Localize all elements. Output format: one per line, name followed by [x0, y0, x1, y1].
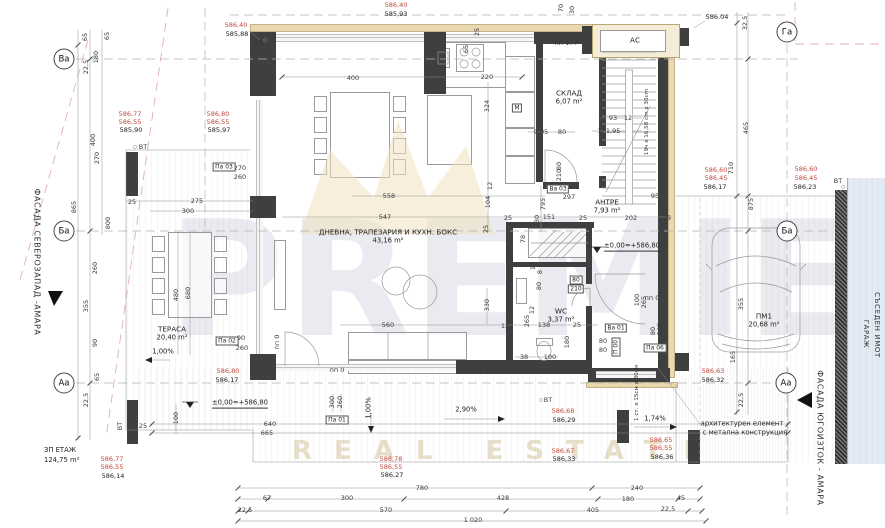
- elevation-design-label: 586,55: [207, 119, 230, 126]
- dimension-label: 570: [380, 507, 392, 514]
- dimension-label: 30: [569, 6, 576, 14]
- dimension-label: 104: [485, 196, 492, 208]
- neighbor-plot-label: СЪСЕДЕН ИМОТ: [873, 292, 881, 358]
- elevation-design-label: 586,60: [705, 167, 728, 174]
- dimension-label: 9,05: [534, 129, 548, 136]
- dimension-label: 730: [534, 215, 541, 227]
- room-name: АНТРЕ: [594, 197, 621, 206]
- opening-tag: М: [512, 104, 522, 113]
- dimension-label: 865: [71, 201, 78, 213]
- axis-id: Ва: [58, 54, 69, 64]
- elevation-design-label: 586,63: [702, 368, 725, 375]
- dimension-label: 480: [173, 289, 180, 301]
- elevation-design-label: 586,45: [705, 175, 728, 182]
- dimension-label: 180: [622, 496, 634, 503]
- dimension-label: 270: [234, 165, 246, 172]
- elevation-design-label: 586,55: [650, 445, 673, 452]
- room-label: АНТРЕ7,93 m²: [594, 197, 621, 214]
- dimension-label: 265: [524, 315, 531, 327]
- dimension-label: 25: [139, 423, 147, 430]
- dimension-label: 8: [537, 270, 544, 274]
- axis-id: Ба: [58, 226, 69, 236]
- facade-label-southeast: ФАСАДА ЮГОИЗТОК - АМАРА: [816, 370, 825, 505]
- dimension-label: 405: [587, 507, 599, 514]
- floor-summary-area: 124,75 m²: [44, 456, 79, 464]
- elevation-design-label: 586,55: [380, 464, 403, 471]
- dimension-label: 32,5: [742, 16, 749, 30]
- room-label: ПМ120,68 m²: [749, 311, 780, 328]
- dimension-label: 121,95: [598, 128, 621, 135]
- dimension-label: 80: [536, 282, 543, 290]
- dimension-label: пп 177: [555, 40, 578, 47]
- dimension-label: 95: [651, 193, 659, 200]
- room-label: АС: [630, 36, 640, 45]
- dimension-label: 165: [730, 351, 737, 363]
- dimension-label: 180: [564, 336, 571, 348]
- elevation-existing-label: 585,90: [120, 127, 143, 134]
- dimension-label: 800: [105, 217, 112, 229]
- dimension-label: 65: [94, 373, 101, 381]
- dimension-label: 67: [263, 495, 271, 502]
- dimension-label: 65: [82, 33, 89, 41]
- elevation-existing-label: 586,36: [651, 454, 674, 461]
- dimension-label: 400: [347, 75, 359, 82]
- axis-id: Аа: [58, 378, 69, 388]
- neighbor-garage-label: ГАРАЖ: [862, 320, 870, 349]
- dimension-label: пп 0: [645, 295, 660, 302]
- dimension-label: 680: [185, 287, 192, 299]
- dimension-label: 270: [94, 152, 101, 164]
- axis-bubble: Аа: [776, 373, 797, 394]
- dimension-label: 297: [563, 194, 575, 201]
- dimension-label: 875: [748, 198, 755, 210]
- elevation-existing-label: 585,93: [385, 11, 408, 18]
- dimension-label: 22,5: [83, 393, 90, 407]
- dimension-label: 265: [657, 323, 664, 335]
- dimension-label: ВТ: [544, 397, 552, 404]
- annotation: архитектурен елемент: [701, 421, 784, 428]
- dimension-label: 22,5: [83, 60, 90, 74]
- dimension-label: 220: [481, 74, 493, 81]
- room-name: ДНЕВНА, ТРАПЕЗАРИЯ И КУХН. БОКС: [319, 227, 457, 236]
- room-label: СКЛАД6,07 m²: [556, 88, 583, 105]
- elevation-design-label: 586,78: [380, 456, 403, 463]
- dimension-label: 12: [624, 115, 632, 122]
- dimension-label: 324: [484, 100, 491, 112]
- elevation-design-label: 586,77: [101, 456, 124, 463]
- elevation-existing-label: 585,97: [208, 127, 231, 134]
- dimension-label: 25: [476, 364, 483, 372]
- dimension-label: 38: [520, 354, 528, 361]
- dimension-label: 80: [599, 338, 607, 345]
- axis-bubble: Аа: [54, 373, 75, 394]
- dimension-label: 275: [191, 198, 203, 205]
- floor-plan: PREMIER REAL ESTATE ФАСАДА СЕВЕРОЗАПАД -…: [0, 0, 885, 528]
- elevation-existing-label: 586,33: [553, 456, 576, 463]
- room-area: 7,93 m²: [594, 206, 621, 214]
- dimension-label: 151: [543, 214, 555, 221]
- dimension-label: 80: [599, 347, 607, 354]
- dimension-label: 330: [484, 299, 491, 311]
- dimension-label: 202: [625, 215, 637, 222]
- dimension-label: ВТ: [117, 422, 124, 430]
- dimension-label: 558: [383, 193, 395, 200]
- elevation-existing-label: 586.04: [706, 14, 729, 21]
- room-area: 43,16 m²: [319, 236, 457, 244]
- dimension-label: 70: [558, 4, 565, 12]
- dimension-label: 25: [504, 215, 512, 222]
- elevation-existing-label: 586,23: [794, 184, 817, 191]
- dimension-label: 260: [234, 174, 246, 181]
- elevation-existing-label: 586,27: [381, 472, 404, 479]
- elevation-design-label: 586,40: [385, 2, 408, 9]
- dimension-label: 22,5: [661, 506, 675, 513]
- annotation: 2,90%: [455, 407, 477, 414]
- dimension-label: 560: [382, 322, 394, 329]
- room-label: ДНЕВНА, ТРАПЕЗАРИЯ И КУХН. БОКС43,16 m²: [319, 227, 457, 244]
- elevation-design-label: 586,55: [101, 464, 124, 471]
- annotation: 1,74%: [644, 416, 666, 423]
- dimension-label: 260: [92, 262, 99, 274]
- dimension-label: 25: [128, 199, 136, 206]
- dimension-label: 547: [379, 214, 391, 221]
- dimension-label: 90: [92, 339, 99, 347]
- dimension-label: 640: [264, 421, 276, 428]
- elevation-design-label: 586,77: [119, 111, 142, 118]
- dimension-label: 65: [104, 32, 111, 40]
- dimension-label: ВТ: [834, 178, 842, 185]
- room-name: ТЕРАСА: [157, 324, 188, 333]
- dimension-label: 295: [662, 235, 669, 247]
- opening-tag: 210: [568, 285, 584, 294]
- annotation: с метална конструкция: [703, 430, 787, 437]
- dimension-label: 240: [631, 485, 643, 492]
- elevation-existing-label: 585,88: [226, 31, 249, 38]
- annotation: 1 ст. x 15см x 30см: [635, 365, 641, 421]
- elevation-existing-label: 586,17: [216, 377, 239, 384]
- dimension-label: ВТ: [139, 144, 147, 151]
- annotation: 1,00%: [152, 349, 174, 356]
- elevation-design-label: 586,55: [119, 119, 142, 126]
- opening-tag: Ва 01: [605, 324, 627, 333]
- floor-summary-label: ЗП ЕТАЖ: [44, 446, 76, 454]
- dimension-label: 400: [90, 134, 97, 146]
- dimension-label: 465: [743, 122, 750, 134]
- elevation-design-label: 586,80: [217, 368, 240, 375]
- room-area: 6,07 m²: [556, 97, 583, 105]
- dimension-label: 300: [341, 495, 353, 502]
- room-name: ПМ1: [749, 311, 780, 320]
- dimension-label: 355: [83, 300, 90, 312]
- axis-bubble: Ба: [777, 221, 798, 242]
- dimension-label: 300: [182, 208, 194, 215]
- opening-tag: 80: [570, 276, 583, 285]
- annotation: 1,00%: [366, 397, 373, 419]
- plan-linework: [0, 0, 885, 528]
- dimension-label: 25: [474, 28, 481, 36]
- dimension-label: 25: [483, 225, 490, 233]
- dimension-label: 100: [173, 412, 180, 424]
- elevation-existing-label: 586,17: [704, 184, 727, 191]
- axis-id: Га: [782, 27, 792, 37]
- dimension-label: 78: [520, 235, 527, 243]
- dimension-label: 80: [558, 129, 566, 136]
- axis-bubble: Ба: [54, 221, 75, 242]
- dimension-label: 300: [329, 396, 336, 408]
- elevation-existing-label: 586,14: [102, 473, 125, 480]
- floor-summary: ЗП ЕТАЖ 124,75 m²: [44, 446, 79, 465]
- room-name: АС: [630, 36, 640, 45]
- dimension-label: пп 0: [330, 367, 345, 374]
- dimension-label: 22,5: [238, 507, 252, 514]
- dimension-label: 780: [416, 485, 428, 492]
- dimension-label: 65: [463, 45, 470, 53]
- opening-tag: П 00: [612, 337, 621, 356]
- room-area: 20,40 m²: [157, 333, 188, 341]
- elevation-design-label: 586,45: [795, 175, 818, 182]
- dimension-label: 25: [579, 215, 587, 222]
- axis-bubble: Га: [777, 22, 798, 43]
- opening-tag: Ва 03: [547, 185, 569, 194]
- room-area: 3,37 m²: [548, 315, 575, 323]
- dimension-label: 12: [487, 182, 494, 190]
- axis-id: Аа: [780, 378, 791, 388]
- dimension-label: 45: [677, 495, 685, 502]
- opening-tag: Па 01: [326, 416, 349, 425]
- dimension-label: 12: [501, 323, 509, 330]
- dimension-label: 12: [529, 306, 536, 314]
- dimension-label: 355: [738, 298, 745, 310]
- dimension-label: пп 0: [274, 335, 281, 350]
- dimension-label: 260: [337, 396, 344, 408]
- axis-bubble: Ва: [54, 49, 75, 70]
- elevation-design-label: 586,60: [795, 166, 818, 173]
- dimension-label: 180: [93, 51, 100, 63]
- opening-tag: Па 02: [216, 337, 239, 346]
- elevation-design-label: 586,67: [552, 448, 575, 455]
- dimension-label: 12: [530, 262, 537, 270]
- elevation-design-label: 586,40: [225, 22, 248, 29]
- dimension-label: 25: [663, 215, 671, 222]
- facade-label-northwest: ФАСАДА СЕВЕРОЗАПАД -АМАРА: [33, 189, 42, 336]
- dimension-label: 100: [544, 354, 556, 361]
- room-area: 20,68 m²: [749, 320, 780, 328]
- dimension-label: 93: [609, 115, 617, 122]
- elevation-design-label: 586,68: [552, 408, 575, 415]
- dimension-label: 22,5: [738, 393, 745, 407]
- elevation-existing-label: 586,29: [553, 417, 576, 424]
- dimension-label: 710: [728, 162, 735, 174]
- dimension-label: 795: [540, 198, 547, 210]
- dimension-label: 665: [261, 430, 273, 437]
- elevation-design-label: 586,65: [650, 437, 673, 444]
- opening-tag: Па 06: [644, 344, 667, 353]
- dimension-label: 428: [497, 495, 509, 502]
- annotation: ±0,00=+586,80: [604, 243, 660, 252]
- opening-tag: Па 03: [213, 163, 236, 172]
- room-name: СКЛАД: [556, 88, 583, 97]
- dimension-label: 1 020: [464, 517, 483, 524]
- dimension-label: 210: [556, 169, 563, 181]
- room-label: WC3,37 m²: [548, 306, 575, 323]
- room-label: ТЕРАСА20,40 m²: [157, 324, 188, 341]
- annotation: 19ч x 16,58 cm x 30cm: [645, 89, 651, 155]
- annotation: ±0,00=+586,80: [212, 400, 268, 409]
- elevation-existing-label: 586,32: [702, 377, 725, 384]
- axis-id: Ба: [781, 226, 792, 236]
- dimension-label: ВТ: [254, 40, 262, 47]
- dimension-label: 260: [236, 345, 248, 352]
- elevation-design-label: 586,80: [207, 111, 230, 118]
- room-name: WC: [548, 306, 575, 315]
